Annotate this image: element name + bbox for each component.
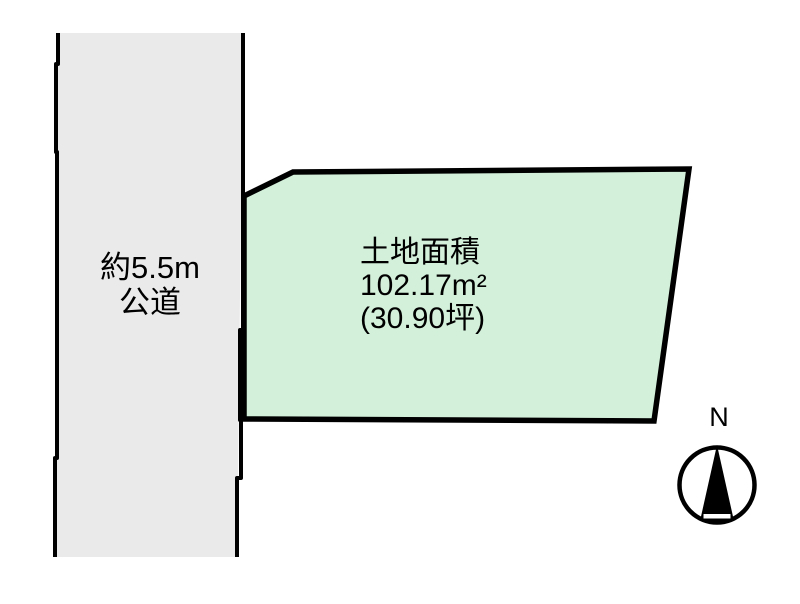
parcel-label: 土地面積 102.17m² (30.90坪) — [360, 236, 487, 335]
road-width-text: 約5.5m — [57, 250, 243, 285]
compass-north-label: N — [701, 402, 737, 432]
parcel-area-tsubo: (30.90坪) — [360, 302, 487, 335]
land-plot-diagram: 約5.5m 公道 土地面積 102.17m² (30.90坪) N — [0, 0, 800, 604]
parcel-area-sqm: 102.17m² — [360, 269, 487, 302]
north-compass-icon — [680, 445, 755, 523]
compass-needle-notch — [704, 514, 731, 519]
parcel-area-title: 土地面積 — [360, 236, 487, 269]
road-type-text: 公道 — [57, 285, 243, 320]
road-label: 約5.5m 公道 — [57, 250, 243, 320]
